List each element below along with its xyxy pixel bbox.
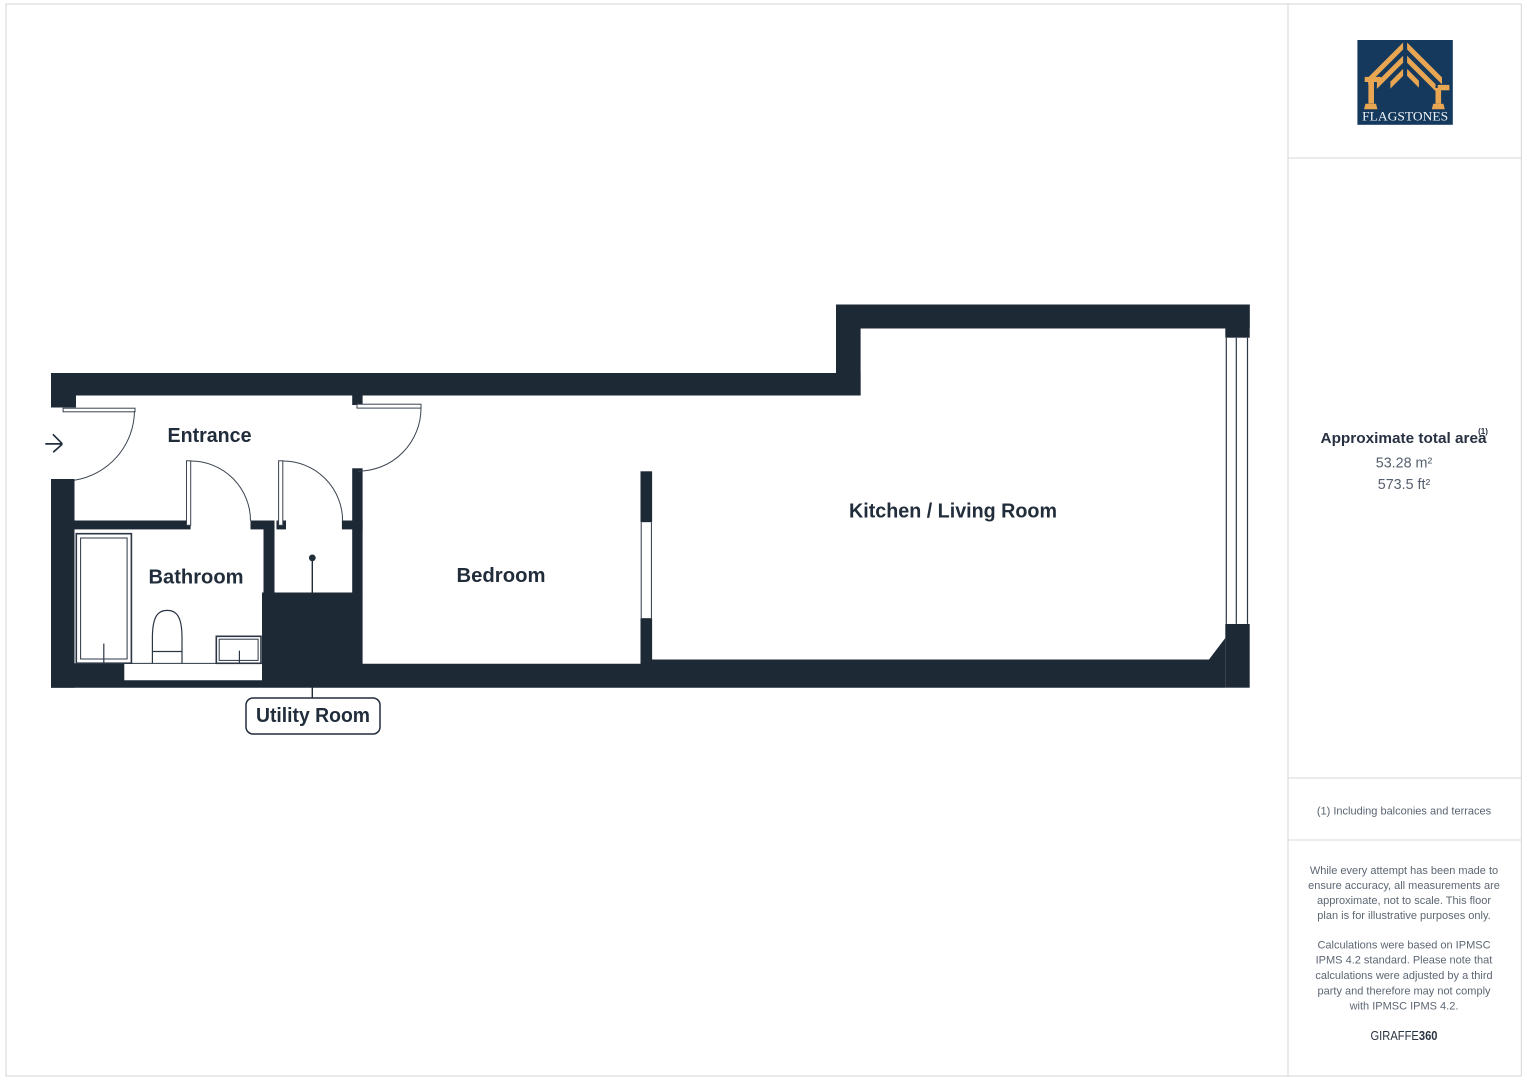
svg-text:Approximate total area: Approximate total area (1321, 430, 1488, 447)
svg-text:party and therefore may not co: party and therefore may not comply (1317, 985, 1491, 997)
svg-text:IPMS 4.2 standard. Please note: IPMS 4.2 standard. Please note that (1316, 955, 1493, 967)
svg-text:GIRAFFE360: GIRAFFE360 (1371, 1029, 1438, 1043)
svg-text:53.28 m²: 53.28 m² (1376, 456, 1433, 472)
svg-text:573.5 ft²: 573.5 ft² (1378, 477, 1431, 493)
svg-text:Bedroom: Bedroom (457, 565, 546, 587)
svg-text:(1): (1) (1478, 427, 1488, 436)
svg-text:Kitchen / Living Room: Kitchen / Living Room (849, 501, 1057, 523)
svg-text:plan is for illustrative purpo: plan is for illustrative purposes only. (1317, 910, 1490, 922)
svg-text:approximate, not to scale. Thi: approximate, not to scale. This floor (1317, 895, 1491, 907)
svg-text:Utility Room: Utility Room (256, 705, 370, 727)
svg-text:Bathroom: Bathroom (149, 567, 244, 589)
svg-text:Entrance: Entrance (168, 425, 252, 447)
svg-text:Calculations were based on IPM: Calculations were based on IPMSC (1317, 940, 1490, 952)
svg-text:While every attempt has been m: While every attempt has been made to (1310, 865, 1498, 877)
svg-text:with IPMSC IPMS 4.2.: with IPMSC IPMS 4.2. (1349, 1001, 1459, 1013)
svg-text:calculations were adjusted by: calculations were adjusted by a third (1315, 970, 1492, 982)
svg-text:(1) Including balconies and te: (1) Including balconies and terraces (1317, 806, 1492, 818)
svg-text:FLAGSTONES: FLAGSTONES (1362, 109, 1448, 124)
svg-text:ensure accuracy, all measureme: ensure accuracy, all measurements are (1308, 880, 1500, 892)
